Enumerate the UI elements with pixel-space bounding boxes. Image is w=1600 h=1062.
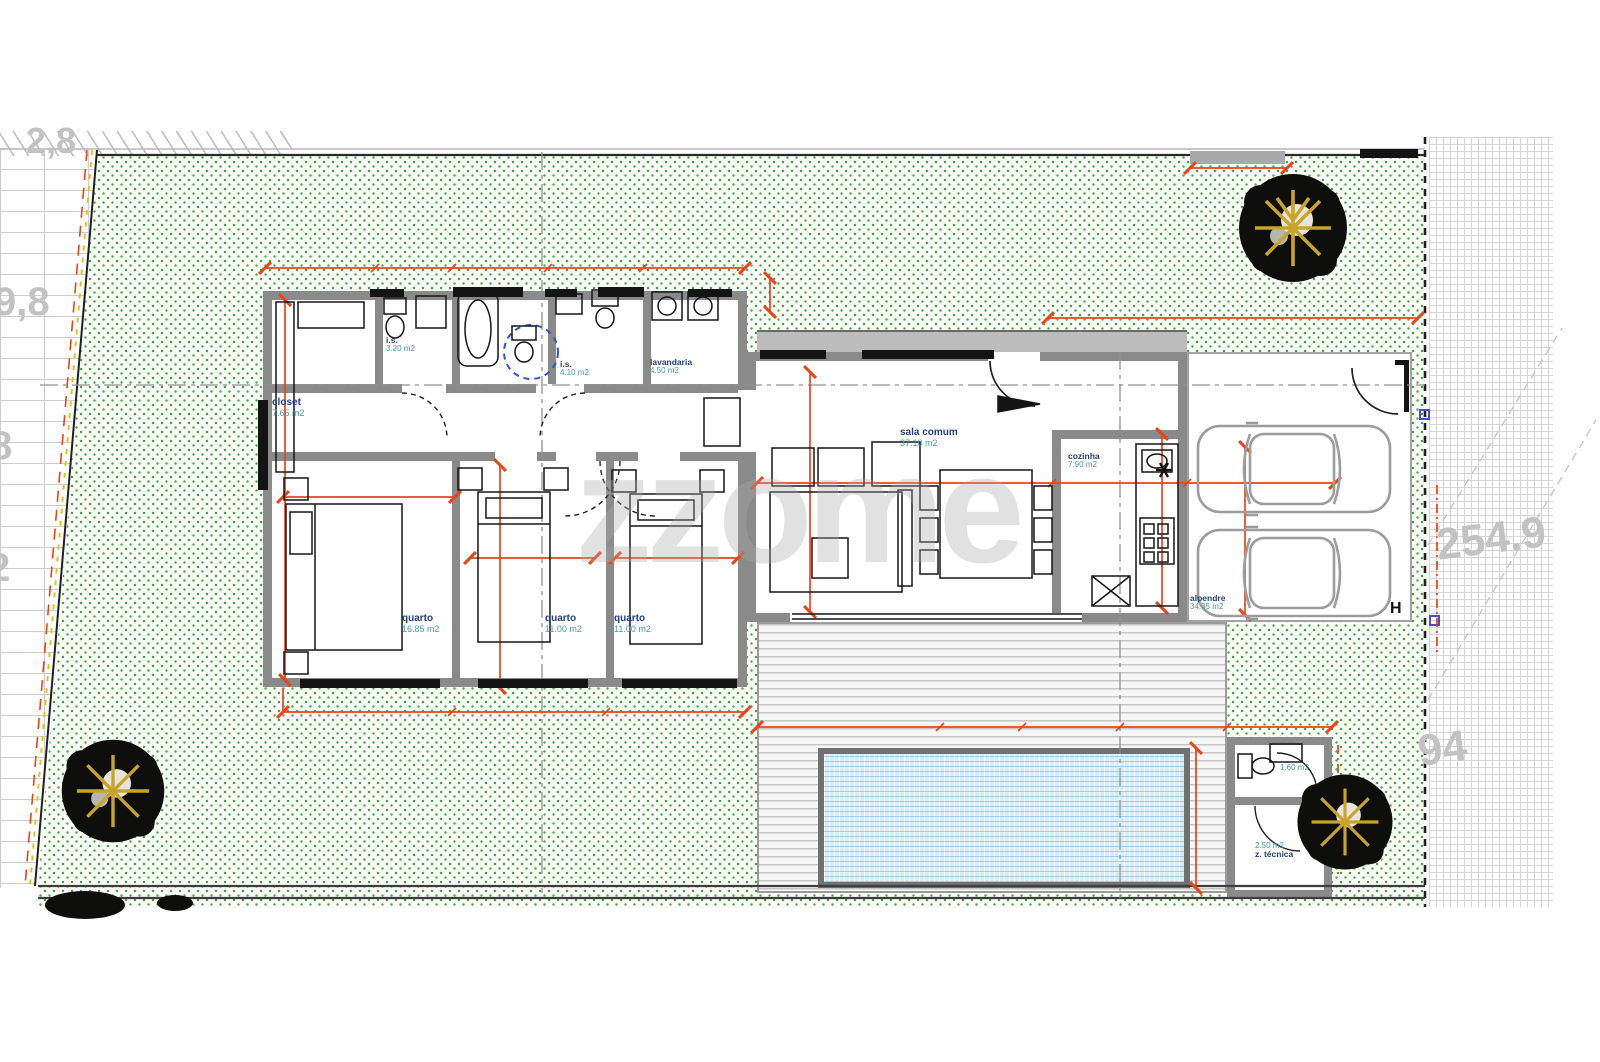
room-label-is-mid: i.s. 4.10 m2 [560,360,589,377]
level-label: 2 [0,546,10,591]
partition-wall [452,452,460,687]
level-label: 94 [1415,721,1470,777]
room-label-cozinha: cozinha 7.90 m2 [1068,452,1100,469]
swimming-pool [818,748,1190,888]
partition-wall [452,300,460,386]
partition-wall [375,300,383,386]
door-opening [402,384,446,393]
level-label: 8 [0,424,12,469]
h-marker: H [1390,600,1402,618]
kitchen-wall [1052,430,1061,622]
glass-opening [790,613,1082,622]
room-label-lavandaria: lavandaria 4.50 m2 [650,358,692,375]
room-label-zona-tecnica: 2.50 m2 z. técnica [1255,842,1293,859]
door-opening [495,452,537,461]
floor-plan: closet 7.65 m2 i.s. 3.20 m2 i.s. 4.10 m2… [0,0,1600,1062]
carport-alpendre [1187,352,1412,622]
level-label: 9,8 [0,280,50,325]
corridor-wall [272,384,738,393]
room-label-closet: closet 7.65 m2 [272,398,305,418]
room-label-quarto-1: quarto 16.85 m2 [402,614,440,634]
north-path [757,330,1187,352]
tech-divider-wall [1235,797,1324,805]
room-label-alpendre: alpendre 34.35 m2 [1190,594,1225,611]
partition-wall [548,300,556,386]
entry-opening [988,352,1040,361]
room-label-quarto-3: quarto 11.00 m2 [614,614,651,634]
door-opening [536,384,584,393]
room-label-quarto-2: quarto 11.00 m2 [545,614,582,634]
pool-tech-building [1227,737,1332,898]
kitchen-wall [1052,430,1187,439]
level-label: 2,8 [26,120,76,162]
watermark: zzome [575,420,1019,598]
room-label-wc-piscina: 1.60 m2 [1280,764,1309,772]
room-label-is-top: i.s. 3.20 m2 [386,336,415,353]
